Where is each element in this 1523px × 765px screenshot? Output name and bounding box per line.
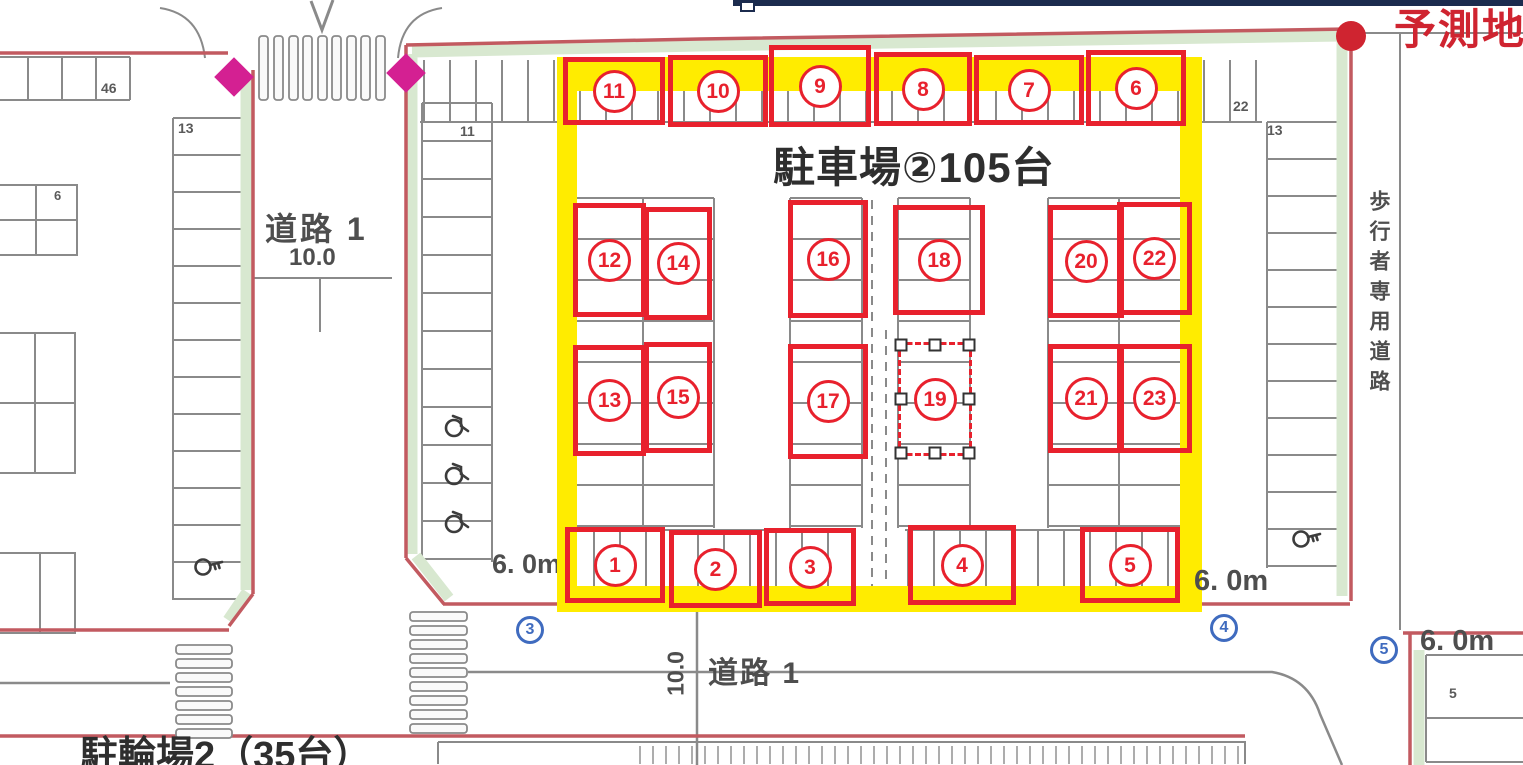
circled-number: 9 [799, 65, 842, 108]
resize-handle[interactable] [929, 447, 942, 460]
dimension-left: 6. 0m [492, 549, 561, 580]
site-plan: 11 10 9 8 7 6 12 14 16 18 20 22 13 15 17… [0, 0, 1523, 765]
annotation-box-17[interactable]: 17 [788, 344, 868, 459]
circled-number: 23 [1133, 377, 1176, 420]
circled-number: 3 [789, 546, 832, 589]
circled-number: 11 [593, 70, 636, 113]
key-icon [196, 560, 223, 575]
annotation-box-13[interactable]: 13 [573, 345, 646, 456]
annotation-box-8[interactable]: 8 [874, 52, 972, 126]
stall-count-top-right: 22 [1233, 98, 1249, 114]
circled-number: 5 [1109, 544, 1152, 587]
circled-number: 10 [697, 70, 740, 113]
reference-marker-3: 3 [516, 616, 544, 644]
key-icon [1294, 532, 1321, 547]
crosswalk-top [259, 36, 385, 100]
circled-number: 19 [914, 378, 957, 421]
annotation-box-21[interactable]: 21 [1048, 344, 1124, 453]
resize-handle[interactable] [895, 393, 908, 406]
reference-marker-5: 5 [1370, 636, 1398, 664]
stall-count-left-block: 6 [54, 188, 61, 203]
annotation-box-2[interactable]: 2 [669, 530, 762, 608]
predicted-site-label: 予測地 [1394, 0, 1523, 57]
annotation-box-20[interactable]: 20 [1048, 205, 1124, 318]
stall-count-right-col: 13 [1267, 122, 1283, 138]
stall-count-bottom-right: 5 [1449, 685, 1457, 701]
circled-number: 18 [918, 239, 961, 282]
dimension-right: 6. 0m [1194, 565, 1268, 598]
predicted-site-dot [1336, 21, 1366, 51]
annotation-box-10[interactable]: 10 [668, 55, 768, 127]
circled-number: 6 [1115, 67, 1158, 110]
site-title: 駐車場②105台 [773, 134, 1055, 195]
stall-count-left-row: 46 [101, 80, 117, 96]
circled-number: 13 [588, 379, 631, 422]
circled-number: 21 [1065, 377, 1108, 420]
dimension-far-right: 6. 0m [1420, 625, 1494, 658]
circled-number: 7 [1008, 69, 1051, 112]
circled-number: 1 [594, 544, 637, 587]
circled-number: 15 [657, 376, 700, 419]
circled-number: 2 [694, 548, 737, 591]
diamond-marker [386, 53, 426, 93]
road-bottom-name: 道路 1 [708, 648, 801, 692]
annotation-box-11[interactable]: 11 [563, 57, 665, 125]
resize-handle[interactable] [895, 339, 908, 352]
road-arrow [311, 0, 333, 30]
circled-number: 22 [1133, 237, 1176, 280]
circled-number: 20 [1065, 240, 1108, 283]
circled-number: 12 [588, 239, 631, 282]
road-left-width: 10.0 [289, 244, 336, 272]
pedestrian-road-label: 歩行者専用道路 [1363, 190, 1393, 400]
circled-number: 8 [902, 68, 945, 111]
resize-handle[interactable] [895, 447, 908, 460]
top-edge-notch [741, 2, 754, 11]
annotation-box-18[interactable]: 18 [893, 205, 985, 315]
left-site-boundary [0, 53, 253, 630]
annotation-box-16[interactable]: 16 [788, 200, 868, 318]
road-bottom-width: 10.0 [663, 646, 690, 702]
bicycle-parking-label: 駐輪場2（35台） [80, 724, 371, 765]
annotation-box-9[interactable]: 9 [769, 45, 871, 127]
reference-marker-4: 4 [1210, 614, 1238, 642]
annotation-box-22[interactable]: 22 [1117, 202, 1192, 315]
annotation-box-14[interactable]: 14 [644, 207, 712, 320]
annotation-box-12[interactable]: 12 [573, 203, 646, 317]
annotation-box-19[interactable]: 19 [898, 342, 972, 456]
annotation-box-15[interactable]: 15 [644, 342, 712, 453]
annotation-box-3[interactable]: 3 [764, 528, 856, 606]
circled-number: 17 [807, 380, 850, 423]
annotation-box-23[interactable]: 23 [1117, 344, 1192, 453]
annotation-box-5[interactable]: 5 [1080, 527, 1180, 603]
resize-handle[interactable] [963, 393, 976, 406]
annotation-box-7[interactable]: 7 [974, 55, 1084, 125]
stall-count-left-col: 13 [178, 120, 194, 136]
crosswalk-bottom-center [410, 612, 467, 733]
annotation-box-1[interactable]: 1 [565, 527, 665, 603]
circled-number: 4 [941, 544, 984, 587]
stall-count-inner-left-col: 11 [460, 123, 475, 139]
resize-handle[interactable] [929, 339, 942, 352]
resize-handle[interactable] [963, 339, 976, 352]
annotation-box-4[interactable]: 4 [908, 525, 1016, 605]
wheelchair-icon [446, 464, 468, 484]
annotation-box-6[interactable]: 6 [1086, 50, 1186, 126]
wheelchair-icon [446, 416, 468, 436]
circled-number: 14 [657, 242, 700, 285]
resize-handle[interactable] [963, 447, 976, 460]
circled-number: 16 [807, 238, 850, 281]
